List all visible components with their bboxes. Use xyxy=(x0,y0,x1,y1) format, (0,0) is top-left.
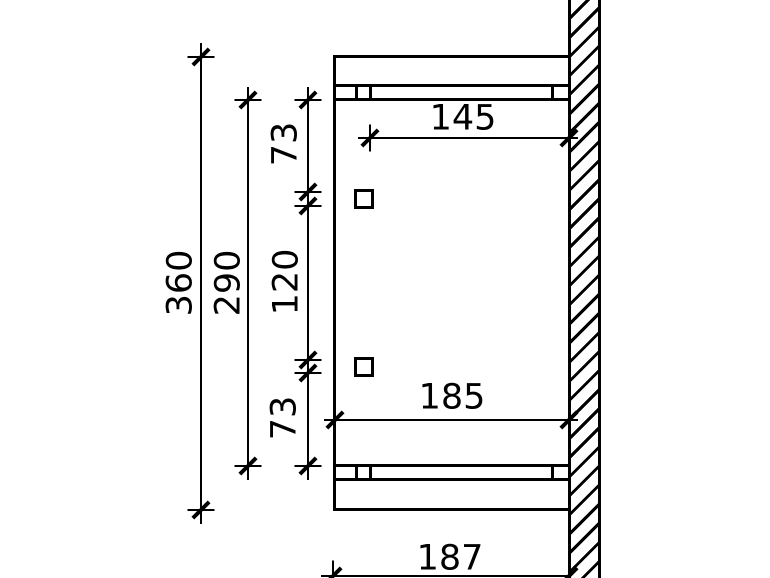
wall-section-hatched xyxy=(568,0,601,578)
lower-rail-divider-1 xyxy=(355,464,358,481)
dim-label-lower-spacing: 73 xyxy=(268,396,303,441)
dim-line-spacings xyxy=(307,87,309,480)
panel-top-line xyxy=(333,55,571,58)
dim-label-bracket-depth: 145 xyxy=(430,102,497,137)
upper-square-cross-section xyxy=(354,189,374,209)
technical-drawing-canvas: 360 290 73 120 73 145 185 187 xyxy=(0,0,770,578)
upper-rail-divider-3 xyxy=(551,84,554,101)
dim-label-total-height: 360 xyxy=(164,250,199,317)
lower-rail-divider-3 xyxy=(551,464,554,481)
dim-label-middle-spacing: 120 xyxy=(270,249,305,316)
panel-bottom-line xyxy=(333,508,571,511)
lower-square-cross-section xyxy=(354,357,374,377)
upper-rail-divider-1 xyxy=(355,84,358,101)
upper-rail-divider-2 xyxy=(369,84,372,101)
dim-label-rail-span: 290 xyxy=(212,250,247,317)
dim-label-upper-spacing: 73 xyxy=(269,122,304,167)
panel-left-edge xyxy=(333,55,336,511)
dim-line-rail-depth xyxy=(324,419,578,421)
dim-label-rail-depth: 185 xyxy=(419,381,486,416)
dim-label-total-depth: 187 xyxy=(417,542,484,577)
lower-rail-divider-2 xyxy=(369,464,372,481)
